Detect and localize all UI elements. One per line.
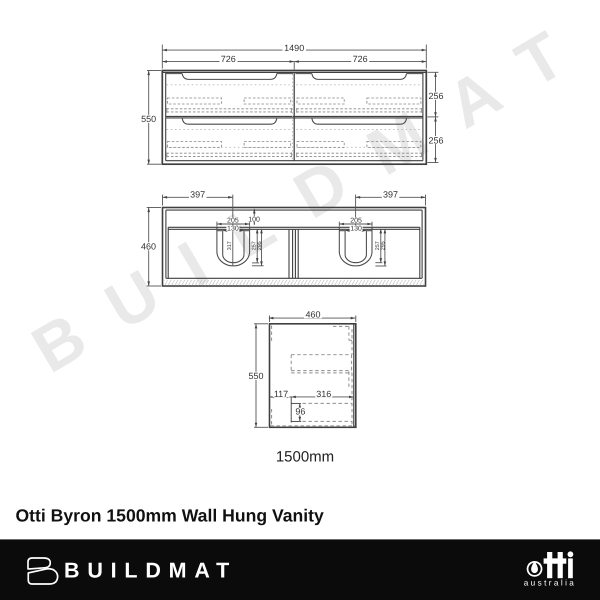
svg-text:295: 295 [381, 241, 387, 250]
svg-text:Otti Byron 1500mm Wall Hung Va: Otti Byron 1500mm Wall Hung Vanity [16, 506, 324, 526]
svg-text:256: 256 [428, 91, 443, 101]
svg-text:100: 100 [248, 217, 260, 224]
svg-text:205: 205 [350, 218, 362, 225]
svg-text:205: 205 [227, 218, 239, 225]
svg-text:130: 130 [350, 226, 362, 233]
svg-text:397: 397 [383, 190, 398, 200]
svg-text:96: 96 [295, 407, 305, 417]
svg-text:460: 460 [141, 241, 156, 251]
svg-text:1490: 1490 [284, 43, 304, 53]
svg-text:316: 316 [316, 389, 331, 399]
svg-text:BUILDMAT: BUILDMAT [64, 559, 237, 583]
svg-text:1500mm: 1500mm [276, 449, 334, 466]
svg-text:550: 550 [248, 371, 263, 381]
svg-text:397: 397 [190, 190, 205, 200]
svg-text:australia: australia [524, 579, 577, 588]
svg-text:460: 460 [305, 310, 320, 320]
svg-text:256: 256 [428, 135, 443, 145]
svg-text:117: 117 [274, 389, 288, 399]
svg-text:295: 295 [257, 241, 263, 250]
svg-text:550: 550 [141, 114, 156, 124]
svg-text:317: 317 [227, 241, 233, 250]
svg-text:726: 726 [353, 54, 368, 64]
svg-text:726: 726 [221, 54, 236, 64]
svg-text:130: 130 [227, 226, 239, 233]
